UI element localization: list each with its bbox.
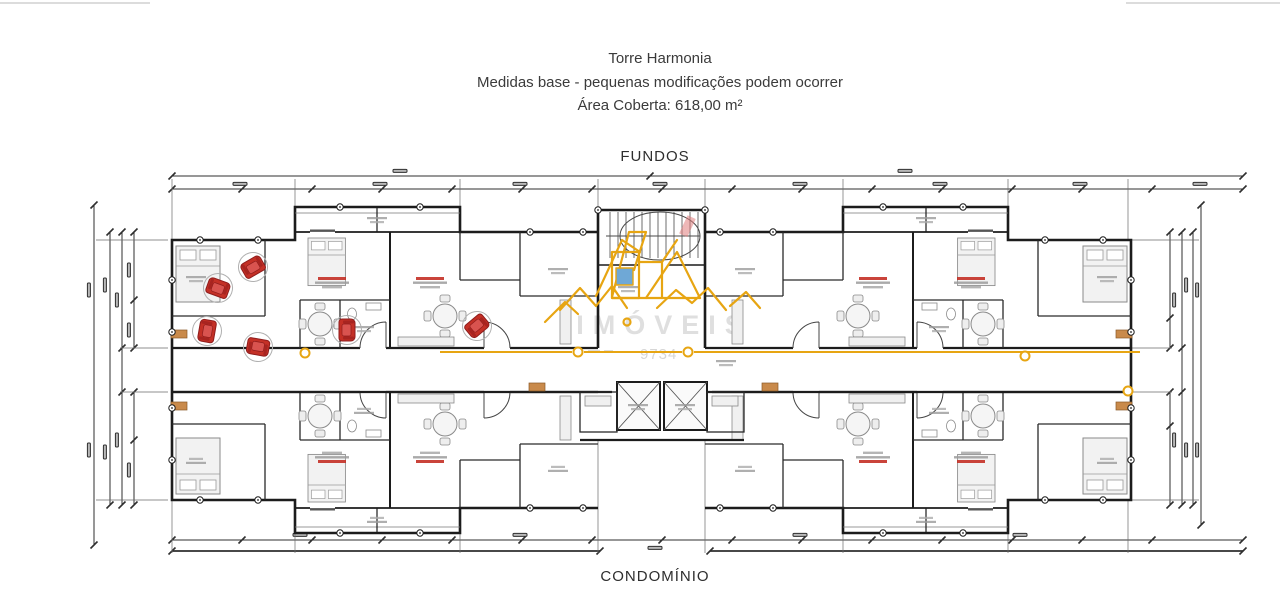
dimension-lines-right bbox=[1167, 202, 1205, 529]
dimension-lines-bottom bbox=[169, 533, 1247, 554]
floorplan-page: Torre Harmonia Medidas base - pequenas m… bbox=[0, 0, 1280, 609]
dimension-lines-left bbox=[87, 202, 137, 549]
watermark-logo-icon bbox=[545, 232, 760, 326]
red-armchair-icon bbox=[233, 247, 273, 287]
apartment-quadrant-top-left bbox=[169, 204, 598, 370]
gold-corridor-line bbox=[301, 348, 1141, 396]
apartment-quadrant-bottom-right bbox=[705, 370, 1134, 536]
dimension-lines-top bbox=[169, 169, 1247, 192]
apartment-quadrant-top-right bbox=[705, 204, 1134, 370]
apartment-quadrant-bottom-left bbox=[169, 370, 598, 536]
floorplan-drawing bbox=[0, 0, 1280, 609]
extension-lines bbox=[96, 179, 1199, 553]
red-armchair-icon bbox=[190, 314, 224, 348]
